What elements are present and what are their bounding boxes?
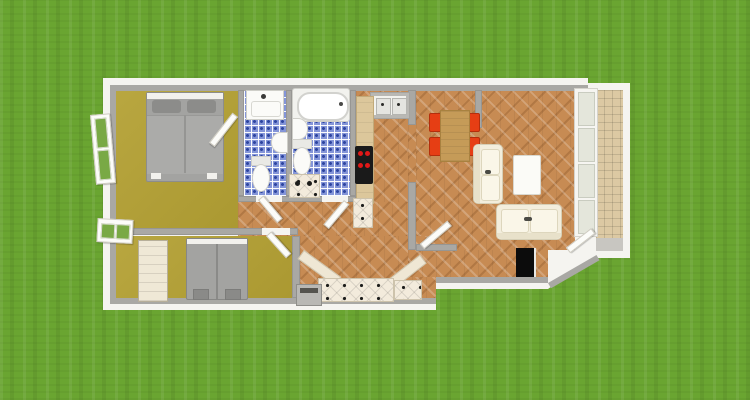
kitchen-sink-unit: [370, 92, 410, 119]
kitchen-lower-cabinet: [353, 198, 373, 228]
floor-plan-scene: [0, 0, 750, 400]
bathtub-faucet: [339, 102, 343, 106]
washer-cabinet: [289, 174, 320, 198]
sofa-vertical: [473, 144, 503, 204]
loveseat-cushion: [501, 209, 529, 233]
balcony-ledge: [596, 238, 623, 251]
loveseat-back: [497, 233, 561, 239]
french-door-pane: [578, 92, 595, 126]
wc-bidet: [271, 132, 288, 153]
sink-drain: [397, 103, 400, 106]
burner: [358, 151, 363, 156]
bed2-foot-right: [225, 289, 241, 300]
washbasin-faucet: [261, 94, 266, 99]
burner: [358, 163, 363, 168]
bedroom2-wardrobe: [138, 240, 168, 302]
bedroom2-double-bed: [186, 238, 248, 300]
cooktop: [355, 146, 373, 184]
bed1-pillow-left: [152, 100, 181, 113]
nook-counter: [318, 278, 394, 302]
bed1-foot-right: [207, 173, 217, 179]
bedroom2-window: [96, 218, 133, 244]
washer-knob: [295, 181, 300, 186]
sofa-back: [474, 145, 480, 203]
bathtub: [297, 92, 349, 121]
balcony-floor: [596, 90, 623, 251]
remote-object: [485, 170, 491, 174]
balcony-french-door: [574, 88, 598, 237]
bathtub-frame: [292, 88, 350, 122]
washer-knob: [307, 181, 312, 186]
french-door-pane: [578, 128, 595, 162]
sink-basin-right: [392, 98, 407, 115]
appliance-control-panel: [300, 288, 318, 293]
wall-hall-living: [408, 182, 416, 250]
front-door: [516, 248, 536, 277]
bathroom-toilet-bowl: [293, 147, 311, 175]
bed1-pillow-right: [187, 100, 216, 113]
window-pane: [116, 224, 131, 240]
nook-appliance: [296, 284, 322, 306]
remote-object: [524, 217, 532, 221]
window-pane: [101, 223, 116, 239]
french-door-pane: [578, 164, 595, 198]
bed2-blanket-seam: [216, 244, 218, 299]
dining-table: [440, 110, 470, 162]
wc-toilet-bowl: [252, 164, 270, 192]
burner: [365, 163, 370, 168]
sofa-cushion: [481, 175, 500, 201]
wall-bedroom1-bathroom: [238, 90, 244, 196]
coffee-table: [513, 155, 541, 195]
sofa-horizontal: [496, 204, 562, 240]
sink-basin-left: [376, 98, 391, 115]
bed1-blanket-seam: [184, 115, 186, 173]
loveseat-cushion: [530, 209, 558, 233]
entrance-wall-face: [436, 277, 548, 283]
sink-drain: [381, 103, 384, 106]
burner: [365, 151, 370, 156]
washbasin-bowl: [251, 101, 281, 117]
nook-counter-right: [394, 280, 422, 300]
bed1-headboard: [147, 93, 223, 99]
window-pane: [97, 149, 112, 180]
window-pane: [94, 118, 109, 149]
wc-washbasin: [246, 90, 284, 120]
bed1-foot-left: [151, 173, 161, 179]
left-wall-face: [110, 85, 116, 304]
bed2-foot-left: [193, 289, 209, 300]
